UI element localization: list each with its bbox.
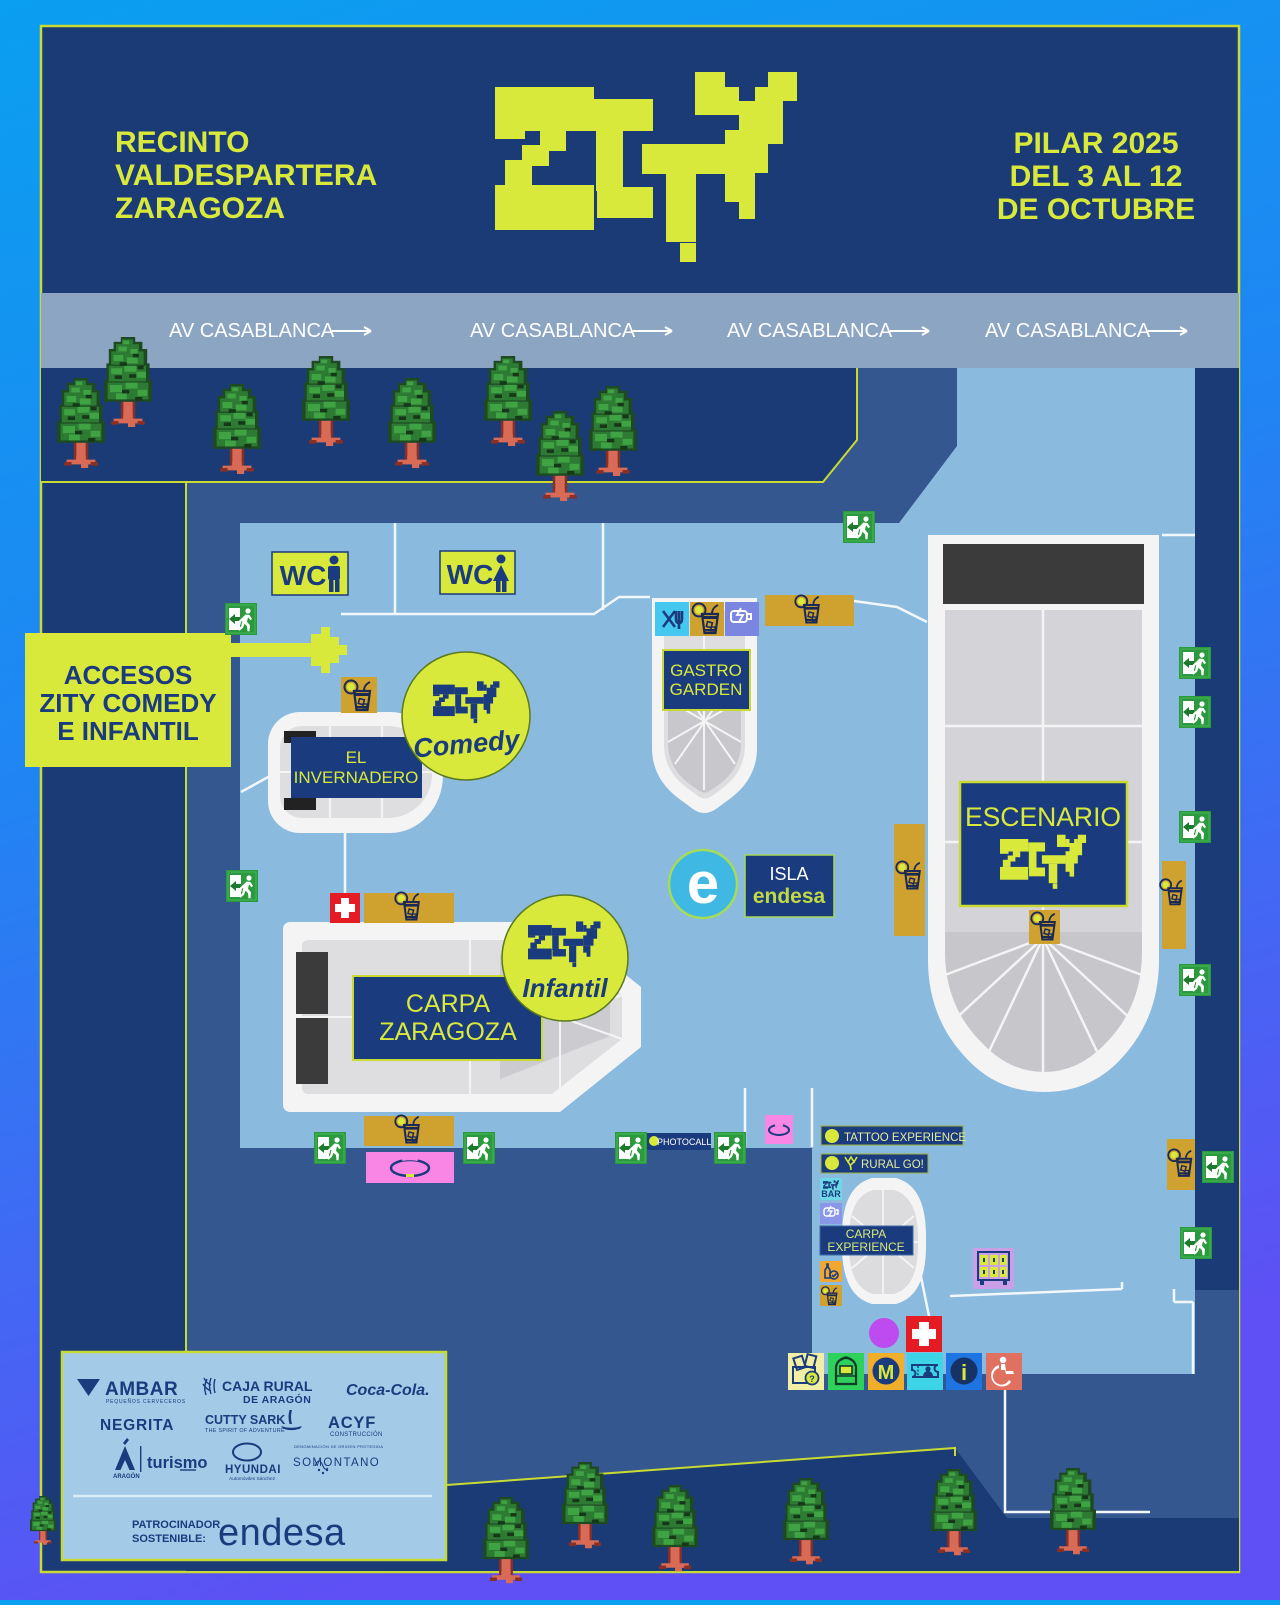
svg-text:WC: WC (447, 559, 494, 590)
svg-text:INVERNADERO: INVERNADERO (294, 768, 419, 787)
svg-text:ZITY COMEDY: ZITY COMEDY (39, 688, 216, 718)
svg-text:PHOTOCALL: PHOTOCALL (657, 1137, 711, 1147)
svg-text:endesa: endesa (753, 885, 826, 908)
svg-text:EL: EL (346, 748, 367, 767)
svg-text:CONSTRUCCIÓN: CONSTRUCCIÓN (330, 1431, 383, 1438)
svg-text:EXPERIENCE: EXPERIENCE (827, 1240, 904, 1254)
svg-text:Coca-Cola.: Coca-Cola. (346, 1382, 430, 1399)
svg-text:WC: WC (280, 560, 327, 591)
svg-text:PEQUEÑOS CERVECEROS: PEQUEÑOS CERVECEROS (106, 1398, 186, 1405)
svg-text:ACCESOS: ACCESOS (64, 660, 193, 690)
svg-text:DENOMINACIÓN DE ORIGEN PROTEGI: DENOMINACIÓN DE ORIGEN PROTEGIDA (294, 1444, 383, 1449)
svg-text:E INFANTIL: E INFANTIL (57, 716, 199, 746)
svg-text:?: ? (809, 1374, 815, 1384)
svg-text:PATROCINADOR: PATROCINADOR (132, 1519, 220, 1531)
svg-text:M: M (878, 1362, 895, 1384)
svg-text:ISLA: ISLA (769, 864, 808, 884)
svg-text:ACYF: ACYF (328, 1414, 376, 1432)
svg-text:AV CASABLANCA: AV CASABLANCA (470, 320, 636, 342)
svg-text:THE SPIRIT OF ADVENTURE: THE SPIRIT OF ADVENTURE (205, 1428, 285, 1434)
svg-text:i: i (961, 1360, 967, 1385)
svg-text:RECINTO: RECINTO (115, 126, 249, 159)
svg-text:VALDESPARTERA: VALDESPARTERA (115, 159, 377, 192)
svg-text:ZARAGOZA: ZARAGOZA (379, 1018, 517, 1046)
svg-text:DE ARAGÓN: DE ARAGÓN (243, 1393, 311, 1406)
svg-text:AV CASABLANCA: AV CASABLANCA (169, 320, 335, 342)
svg-text:PILAR 2025: PILAR 2025 (1013, 127, 1178, 160)
svg-text:Automóviles Sánchez: Automóviles Sánchez (229, 1476, 276, 1482)
svg-text:endesa: endesa (218, 1512, 346, 1554)
svg-text:AV CASABLANCA: AV CASABLANCA (985, 320, 1151, 342)
svg-text:DE OCTUBRE: DE OCTUBRE (997, 193, 1195, 226)
svg-text:Infantil: Infantil (522, 973, 608, 1003)
svg-text:CAJA RURAL: CAJA RURAL (222, 1378, 313, 1394)
svg-text:ZARAGOZA: ZARAGOZA (115, 192, 285, 225)
svg-text:turismo: turismo (147, 1454, 208, 1472)
svg-text:BAR: BAR (821, 1189, 841, 1199)
svg-text:ESCENARIO: ESCENARIO (965, 802, 1121, 832)
svg-text:e: e (687, 851, 719, 916)
svg-text:CUTTY SARK: CUTTY SARK (205, 1413, 285, 1427)
svg-text:AV CASABLANCA: AV CASABLANCA (727, 320, 893, 342)
svg-text:CARPA: CARPA (846, 1227, 886, 1241)
svg-text:SOSTENIBLE:: SOSTENIBLE: (132, 1533, 206, 1545)
svg-text:TATTOO EXPERIENCE: TATTOO EXPERIENCE (844, 1132, 966, 1144)
svg-text:NEGRITA: NEGRITA (100, 1417, 174, 1434)
svg-text:HYUNDAI: HYUNDAI (225, 1464, 281, 1476)
svg-text:DEL 3 AL 12: DEL 3 AL 12 (1010, 160, 1183, 193)
svg-text:ARAGÓN: ARAGÓN (113, 1472, 140, 1480)
svg-text:GARDEN: GARDEN (670, 680, 743, 699)
svg-text:RURAL GO!: RURAL GO! (861, 1159, 924, 1171)
svg-text:CARPA: CARPA (406, 990, 491, 1018)
svg-text:GASTRO: GASTRO (670, 661, 742, 680)
svg-text:AMBAR: AMBAR (105, 1379, 178, 1400)
svg-text:SOMONTANO: SOMONTANO (293, 1457, 380, 1469)
